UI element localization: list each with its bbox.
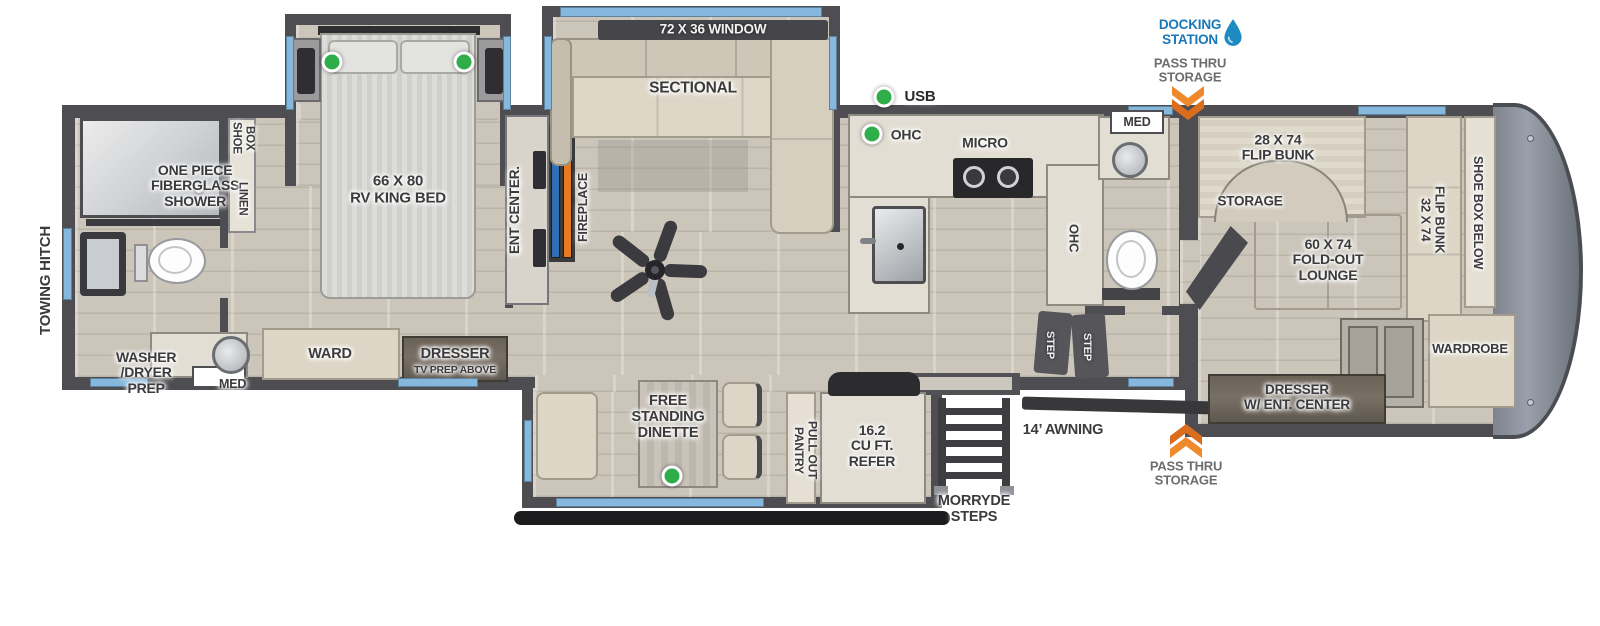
window-sectional-left <box>544 36 552 110</box>
morryde-step-rung-3 <box>938 440 1010 447</box>
wardrobe-label: WARDROBE <box>1432 342 1508 356</box>
fold-out-lounge-label: 60 X 74 FOLD-OUT LOUNGE <box>1293 237 1364 283</box>
sectional-arm-left <box>550 38 572 166</box>
pass-thru-arrow-up-icon <box>1166 424 1206 458</box>
linen-label: LINEN <box>236 182 249 216</box>
dresser-front-label: DRESSER W/ ENT. CENTER <box>1244 383 1350 413</box>
shoe-box-below-label: SHOE BOX BELOW <box>1470 128 1484 298</box>
washer-dryer-label: WASHER /DRYER PREP <box>116 350 176 396</box>
morryde-step-rung-4 <box>938 456 1010 463</box>
morryde-step-rung-1 <box>938 408 1010 415</box>
dinette-light-indicator <box>662 466 683 487</box>
toilet-rear-seat <box>158 246 192 274</box>
refrigerator-top <box>828 372 920 396</box>
window-bed-slide-left <box>286 36 294 110</box>
nightstand-right-window <box>485 48 503 94</box>
window-bed-slide-right <box>503 36 511 110</box>
dinette-bench <box>536 392 598 480</box>
morryde-steps-label: MORRYDE STEPS <box>938 494 1010 526</box>
bedroom-light-indicator-right <box>454 52 475 73</box>
water-drop-icon <box>1222 18 1244 47</box>
pull-out-pantry-label: PULL OUT PANTRY <box>792 396 818 504</box>
micro-label: MICRO <box>962 135 1008 150</box>
window-bedroom-bottom <box>398 378 478 387</box>
cap-screw-top <box>1527 135 1534 142</box>
midbath-toilet-bowl <box>1106 230 1158 290</box>
pass-thru-bottom-label: PASS THRU STORAGE <box>1150 460 1222 489</box>
cabinet-door-right <box>1384 326 1414 398</box>
kitchen-sink-drain <box>897 243 904 250</box>
rv-floorplan: ONE PIECE FIBERGLASS SHOWER MED WASHER /… <box>0 0 1600 626</box>
midbath-sink <box>1112 142 1148 178</box>
entry-door-threshold <box>916 377 1012 390</box>
pass-thru-top-label: PASS THRU STORAGE <box>1154 57 1226 86</box>
bath-window-frame <box>80 232 126 296</box>
awning-label: 14’ AWNING <box>1023 423 1103 439</box>
usb-label: USB <box>904 89 935 106</box>
shoe-box-label: SHOE BOX <box>230 122 255 154</box>
sectional-chaise <box>770 38 834 234</box>
sectional-label: SECTIONAL <box>649 79 737 96</box>
ent-center-speaker-top <box>533 151 546 189</box>
ceiling-fan-icon <box>600 215 710 325</box>
pass-thru-arrow-down-icon <box>1168 86 1208 120</box>
usb-indicator <box>874 87 895 108</box>
toilet-rear-bowl <box>148 238 206 284</box>
dinette-chair-top <box>722 382 762 428</box>
window-dinette-bottom <box>556 498 764 507</box>
shower-door-track <box>86 219 220 226</box>
window-dinette-left <box>524 420 532 482</box>
toilet-rear-tank <box>134 244 148 282</box>
step-left-label: STEP <box>1044 322 1056 368</box>
window-entry-side <box>1128 378 1174 387</box>
window-sectional-right <box>829 36 837 110</box>
dinette-chair-bottom <box>722 434 762 480</box>
towing-hitch-label: TOWING HITCH <box>38 196 55 366</box>
morryde-step-rung-2 <box>938 424 1010 431</box>
docking-station-label: DOCKING STATION <box>1159 18 1221 48</box>
stove <box>953 158 1033 198</box>
kitchen-faucet <box>860 238 876 244</box>
refer-label: 16.2 CU FT. REFER <box>849 423 895 469</box>
wall-midbath-bottom-right <box>1162 306 1198 315</box>
king-bed-label: 66 X 80 RV KING BED <box>350 174 446 207</box>
ent-center-label: ENT CENTER. <box>508 140 523 280</box>
step-right-label: STEP <box>1081 324 1093 370</box>
window-72x36-label: 72 X 36 WINDOW <box>660 23 767 38</box>
ohc-light-indicator <box>862 124 883 145</box>
ohc-side-label: OHC <box>1066 208 1080 268</box>
nightstand-left <box>291 38 321 102</box>
bedroom-light-indicator-left <box>322 52 343 73</box>
dresser-rear-label-line1: DRESSER <box>421 347 490 363</box>
flip-bunk-32-label: 32 X 74 FLIP BUNK <box>1418 150 1447 290</box>
rear-bumper <box>514 511 950 525</box>
cap-screw-bottom <box>1527 399 1534 406</box>
window-left-wall <box>63 228 72 300</box>
midbath-toilet-seat <box>1116 240 1146 278</box>
med-rear-label: MED <box>219 378 246 392</box>
wardrobe-front <box>1428 314 1516 408</box>
dresser-rear-label-line2: TV PREP ABOVE <box>414 365 496 377</box>
ward-label: WARD <box>308 347 352 363</box>
flip-bunk-28-label: 28 X 74 FLIP BUNK <box>1242 133 1315 164</box>
morryde-step-rung-5 <box>938 472 1010 479</box>
med-front-label: MED <box>1123 116 1150 130</box>
kitchen-sink <box>872 206 926 284</box>
stove-burner-left <box>963 166 985 188</box>
nightstand-left-window <box>297 48 315 94</box>
storage-label: STORAGE <box>1217 195 1282 210</box>
ent-center-speaker-bottom <box>533 229 546 267</box>
shower-label: ONE PIECE FIBERGLASS SHOWER <box>151 163 239 209</box>
window-sectional-top <box>560 7 822 17</box>
ohc-upper-label: OHC <box>891 127 922 142</box>
living-rug <box>598 140 748 192</box>
stove-burner-right <box>997 166 1019 188</box>
window-top-bunkroom <box>1358 106 1446 115</box>
bath-sink <box>212 336 250 374</box>
dinette-label: FREE STANDING DINETTE <box>631 394 704 442</box>
fireplace-label: FIREPLACE <box>577 152 591 262</box>
